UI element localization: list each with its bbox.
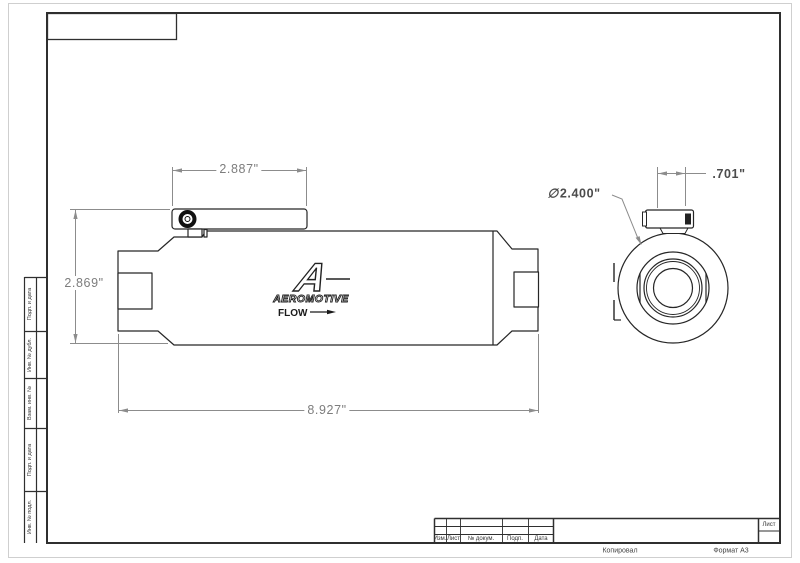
strip-label: Подп. и дата (27, 443, 33, 475)
leader-body-diameter (612, 195, 642, 245)
copied-label: Копировал (602, 548, 637, 555)
bracket-neck (660, 228, 688, 234)
strip-cell-podp-i-data-2: Подп. и дата (24, 428, 36, 491)
dim-text-end-port-width: .701" (709, 167, 748, 181)
strip-label: Взам. инв. № (27, 386, 33, 420)
dim-text-body-diameter: ∅2.400" (544, 186, 603, 201)
strip-cell-inv-podl: Инв. № подл. (24, 491, 36, 542)
stamp-col-ndocum: № докум. (468, 536, 494, 542)
bracket-tab (188, 229, 202, 237)
diameter-value: 2.400" (560, 187, 601, 201)
dim-end-port-width (658, 167, 707, 208)
bracket-flange (643, 212, 647, 226)
dim-text-overall-length: 8.927" (304, 403, 349, 417)
drawing-sheet: A AEROMOTIVE FLOW (0, 0, 800, 563)
bracket-bolt-end (685, 214, 691, 225)
stamp-sheet-label: Лист (762, 522, 775, 528)
strip-label: Инв. № дубл. (27, 337, 33, 371)
stamp-col-izm: Изм. (434, 536, 447, 542)
inlet-port (118, 273, 152, 309)
corner-stamp-box (48, 14, 177, 40)
bracket-tab-small (204, 230, 207, 238)
stamp-col-list: Лист (447, 536, 460, 542)
drawing-canvas: A AEROMOTIVE FLOW (0, 0, 800, 563)
strip-label: Инв. № подл. (27, 499, 33, 533)
strip-cell-vzam-inv: Взам. инв. № (24, 378, 36, 428)
filter-end-view (614, 210, 728, 343)
strip-cell-podp-i-data-1: Подп. и дата (24, 277, 36, 331)
logo-brand-text: AEROMOTIVE (272, 293, 349, 305)
bore-circle (654, 269, 693, 308)
dim-text-bracket-width: 2.887" (216, 162, 261, 176)
diameter-symbol-icon: ∅ (547, 187, 559, 201)
dim-text-overall-height: 2.869" (61, 276, 106, 290)
strip-cell-inv-dubl: Инв. № дубл. (24, 331, 36, 378)
stamp-col-podp: Подп. (507, 536, 523, 542)
outlet-port (514, 272, 539, 307)
filter-body-outline (118, 231, 538, 345)
flow-label: FLOW (278, 308, 308, 319)
bracket-bolt-center (185, 217, 190, 222)
format-label: Формат A3 (713, 548, 748, 555)
filter-side-view (118, 209, 539, 345)
strip-label: Подп. и дата (27, 288, 33, 320)
dim-overall-length (119, 334, 539, 413)
stamp-col-data: Дата (534, 536, 547, 542)
